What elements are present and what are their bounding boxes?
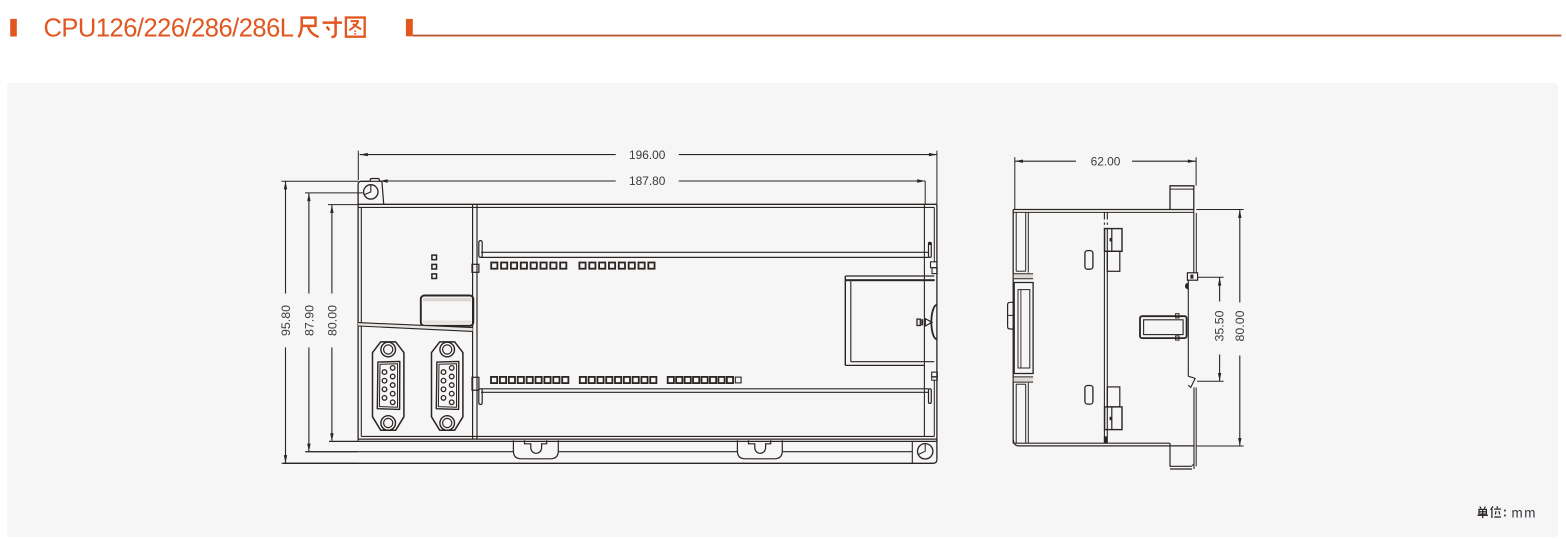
svg-text:35.50: 35.50 xyxy=(1213,310,1227,341)
svg-text:95.80: 95.80 xyxy=(279,305,293,336)
svg-text:187.80: 187.80 xyxy=(629,174,666,188)
svg-text:mm: mm xyxy=(1512,505,1538,520)
svg-text:CPU126/226/286/286L: CPU126/226/286/286L xyxy=(44,15,294,43)
svg-text:62.00: 62.00 xyxy=(1091,154,1121,168)
svg-text:80.00: 80.00 xyxy=(325,305,339,336)
svg-text:80.00: 80.00 xyxy=(1233,310,1247,341)
svg-text:87.90: 87.90 xyxy=(302,305,316,336)
svg-text:196.00: 196.00 xyxy=(629,148,666,162)
